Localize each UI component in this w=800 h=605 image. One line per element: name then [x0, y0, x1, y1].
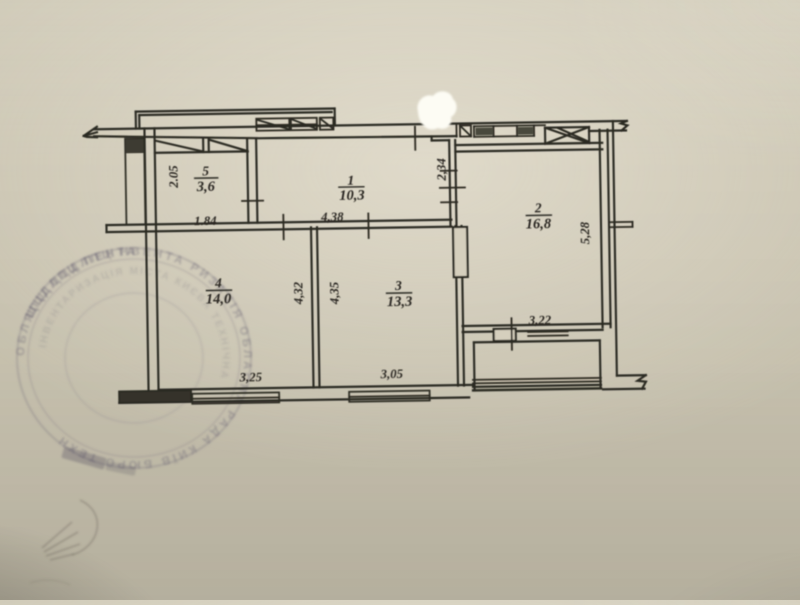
- svg-text:13,3: 13,3: [387, 294, 413, 310]
- svg-text:3,05: 3,05: [380, 367, 404, 381]
- svg-text:5,28: 5,28: [578, 221, 592, 244]
- svg-text:2: 2: [534, 200, 542, 215]
- svg-text:10,3: 10,3: [339, 188, 365, 204]
- svg-text:2.05: 2.05: [167, 165, 181, 189]
- svg-text:16,8: 16,8: [526, 216, 552, 232]
- svg-text:4,32: 4,32: [291, 281, 305, 305]
- svg-text:14,0: 14,0: [206, 291, 232, 307]
- svg-text:2,34: 2,34: [434, 157, 448, 181]
- svg-text:3: 3: [394, 278, 402, 293]
- svg-text:4: 4: [214, 275, 222, 290]
- svg-text:5: 5: [202, 163, 209, 178]
- svg-text:3,22: 3,22: [528, 313, 552, 327]
- svg-text:3,6: 3,6: [196, 179, 216, 195]
- svg-text:4,38: 4,38: [320, 210, 344, 224]
- svg-text:3,25: 3,25: [239, 370, 263, 384]
- svg-text:4,35: 4,35: [327, 281, 341, 305]
- svg-text:1.84: 1.84: [194, 214, 217, 228]
